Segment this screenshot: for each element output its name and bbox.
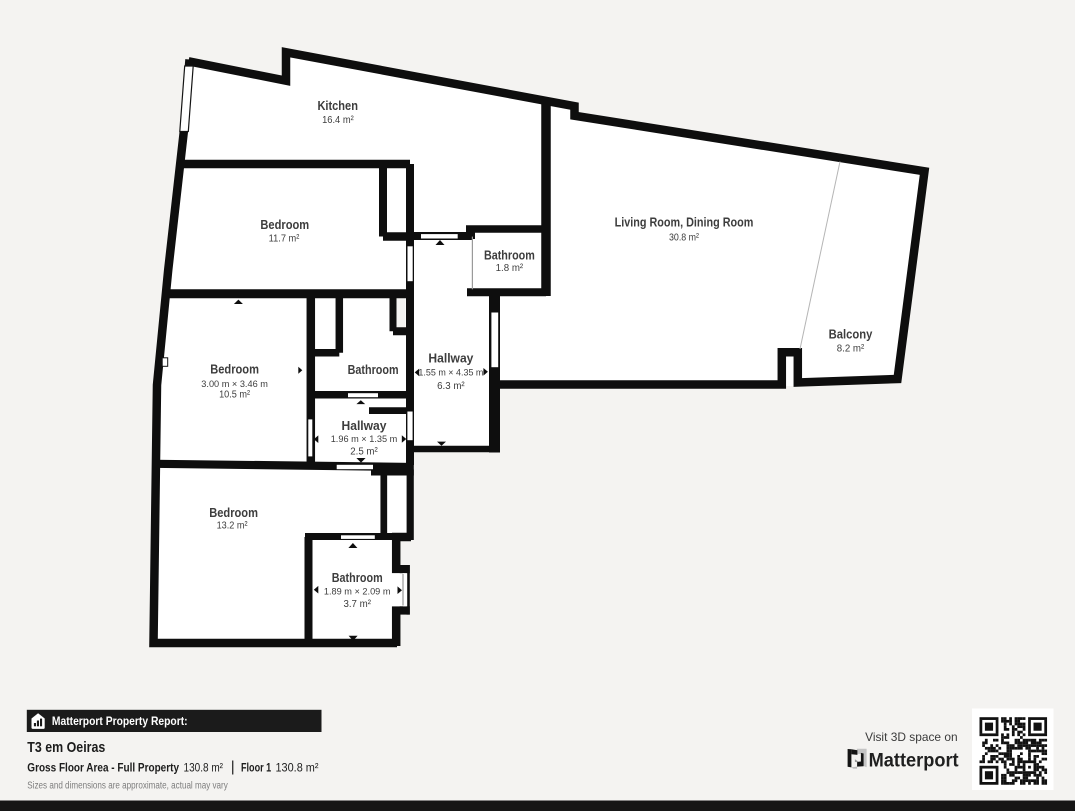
svg-text:2.5 m²: 2.5 m²	[350, 447, 378, 458]
svg-text:Matterport: Matterport	[869, 751, 960, 772]
svg-text:13.2 m²: 13.2 m²	[217, 521, 249, 532]
svg-text:Bathroom: Bathroom	[484, 249, 535, 263]
svg-text:8.2 m²: 8.2 m²	[837, 344, 865, 355]
svg-text:Floor 1: Floor 1	[241, 761, 272, 775]
svg-text:Living Room, Dining Room: Living Room, Dining Room	[615, 216, 754, 230]
svg-text:Gross Floor Area - Full Proper: Gross Floor Area - Full Property	[27, 761, 179, 775]
svg-text:1.89 m × 2.09 m: 1.89 m × 2.09 m	[324, 586, 391, 597]
svg-text:130.8 m²: 130.8 m²	[184, 761, 224, 775]
svg-text:Bedroom: Bedroom	[260, 218, 309, 232]
svg-text:Sizes and dimensions are appro: Sizes and dimensions are approximate, ac…	[27, 781, 228, 792]
svg-text:6.3 m²: 6.3 m²	[437, 381, 465, 392]
svg-text:Bedroom: Bedroom	[209, 506, 258, 520]
svg-text:30.8 m²: 30.8 m²	[669, 233, 700, 244]
svg-text:3.7 m²: 3.7 m²	[343, 599, 371, 610]
svg-text:1.96 m × 1.35 m: 1.96 m × 1.35 m	[331, 434, 398, 445]
svg-text:Kitchen: Kitchen	[317, 99, 358, 113]
svg-text:Hallway: Hallway	[342, 419, 387, 433]
svg-text:T3 em Oeiras: T3 em Oeiras	[27, 739, 105, 756]
svg-text:11.7 m²: 11.7 m²	[269, 234, 300, 245]
svg-text:130.8 m²: 130.8 m²	[276, 761, 319, 775]
svg-text:1.8 m²: 1.8 m²	[496, 263, 524, 274]
svg-text:Balcony: Balcony	[829, 328, 873, 342]
svg-text:Bedroom: Bedroom	[210, 362, 259, 376]
svg-text:3.00 m × 3.46 m: 3.00 m × 3.46 m	[201, 379, 268, 390]
svg-text:16.4 m²: 16.4 m²	[322, 115, 354, 126]
svg-text:10.5 m²: 10.5 m²	[219, 390, 251, 401]
svg-text:Matterport Property Report:: Matterport Property Report:	[52, 716, 188, 728]
svg-text:1.55 m × 4.35 m: 1.55 m × 4.35 m	[418, 368, 483, 379]
svg-text:Bathroom: Bathroom	[348, 363, 399, 377]
svg-text:Visit 3D space on: Visit 3D space on	[865, 730, 958, 744]
svg-text:Bathroom: Bathroom	[332, 571, 383, 585]
svg-text:Hallway: Hallway	[428, 352, 473, 366]
